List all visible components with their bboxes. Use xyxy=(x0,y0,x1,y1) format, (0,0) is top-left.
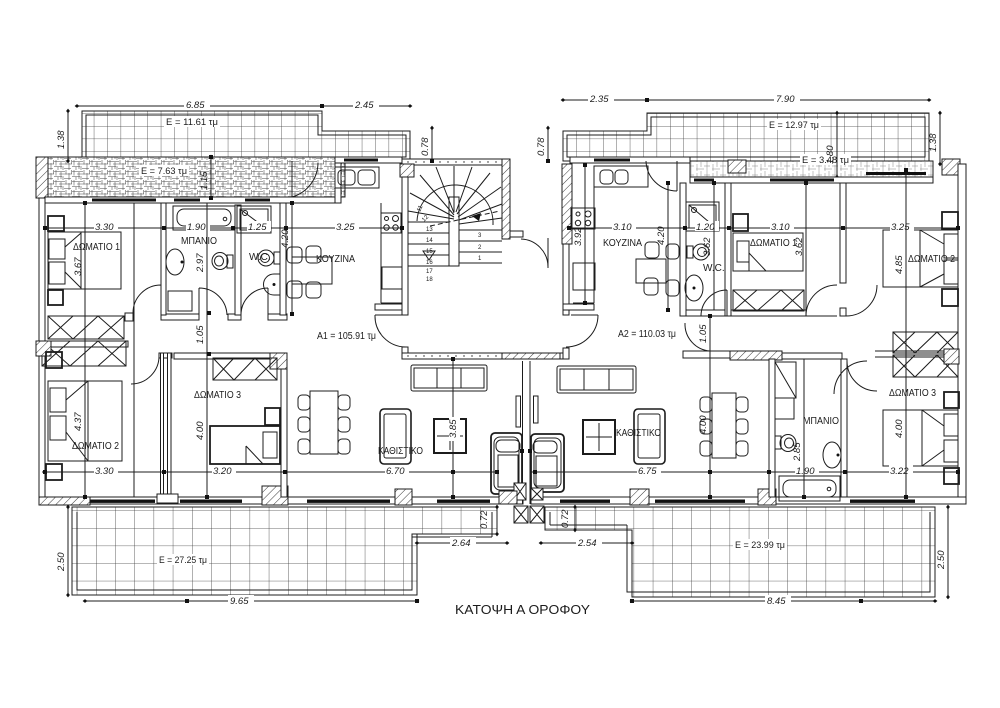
svg-text:1.20: 1.20 xyxy=(696,222,715,233)
svg-text:3.10: 3.10 xyxy=(771,222,790,233)
svg-text:1.05: 1.05 xyxy=(195,325,206,344)
svg-text:17: 17 xyxy=(426,269,433,275)
svg-text:1.38: 1.38 xyxy=(928,133,939,152)
svg-text:1.80: 1.80 xyxy=(825,145,836,164)
svg-text:1.25: 1.25 xyxy=(248,222,267,233)
svg-text:4.00: 4.00 xyxy=(195,421,206,440)
svg-text:1.90: 1.90 xyxy=(796,466,815,477)
svg-text:E = 11.61 τμ: E = 11.61 τμ xyxy=(166,117,218,128)
svg-text:4.20: 4.20 xyxy=(656,226,667,245)
svg-text:2.97: 2.97 xyxy=(195,253,206,273)
svg-text:W.C.: W.C. xyxy=(249,252,271,263)
svg-text:3.92: 3.92 xyxy=(573,227,584,246)
svg-text:2.54: 2.54 xyxy=(577,538,597,549)
svg-text:ΚΑΤΟΨΗ Α ΟΡΟΦΟΥ: ΚΑΤΟΨΗ Α ΟΡΟΦΟΥ xyxy=(455,603,591,617)
svg-text:E = 12.97 τμ: E = 12.97 τμ xyxy=(769,120,819,131)
svg-text:6.70: 6.70 xyxy=(386,466,405,477)
svg-text:7.90: 7.90 xyxy=(776,94,795,105)
svg-text:3.30: 3.30 xyxy=(95,222,114,233)
svg-text:2.85: 2.85 xyxy=(792,442,803,462)
svg-text:8.45: 8.45 xyxy=(767,596,786,607)
svg-text:E = 23.99 τμ: E = 23.99 τμ xyxy=(735,540,785,551)
svg-text:ΔΩΜΑΤΙΟ 2: ΔΩΜΑΤΙΟ 2 xyxy=(908,254,955,265)
svg-text:1.05: 1.05 xyxy=(698,324,709,343)
svg-text:A1 = 105.91 τμ: A1 = 105.91 τμ xyxy=(317,331,376,342)
svg-text:14: 14 xyxy=(426,238,433,244)
svg-text:ΔΩΜΑΤΙΟ 1: ΔΩΜΑΤΙΟ 1 xyxy=(750,238,797,249)
svg-text:W.C.: W.C. xyxy=(703,263,725,274)
svg-text:13: 13 xyxy=(426,227,433,233)
svg-text:2.45: 2.45 xyxy=(354,100,374,111)
svg-text:3.10: 3.10 xyxy=(613,222,632,233)
svg-text:0.72: 0.72 xyxy=(560,509,571,528)
svg-text:A2 = 110.03 τμ: A2 = 110.03 τμ xyxy=(618,329,676,340)
svg-text:2.50: 2.50 xyxy=(56,552,67,572)
svg-text:15: 15 xyxy=(426,249,433,255)
svg-text:1.90: 1.90 xyxy=(187,222,206,233)
svg-text:3.30: 3.30 xyxy=(95,466,114,477)
svg-text:3.62: 3.62 xyxy=(702,237,713,256)
svg-text:6.85: 6.85 xyxy=(186,100,205,111)
svg-text:E = 27.25 τμ: E = 27.25 τμ xyxy=(159,555,207,566)
svg-text:ΜΠΑΝΙΟ: ΜΠΑΝΙΟ xyxy=(803,416,839,427)
svg-text:0.78: 0.78 xyxy=(536,137,547,156)
svg-text:3.67: 3.67 xyxy=(73,257,84,276)
svg-text:1.15: 1.15 xyxy=(199,171,210,190)
svg-text:ΜΠΑΝΙΟ: ΜΠΑΝΙΟ xyxy=(181,236,217,247)
svg-text:0.78: 0.78 xyxy=(420,137,431,156)
svg-text:6.75: 6.75 xyxy=(638,466,657,477)
svg-text:9.65: 9.65 xyxy=(230,596,249,607)
svg-text:3.20: 3.20 xyxy=(213,466,232,477)
svg-text:4.00: 4.00 xyxy=(698,415,709,434)
svg-text:E = 7.63 τμ: E = 7.63 τμ xyxy=(141,166,187,177)
svg-text:3.25: 3.25 xyxy=(891,222,910,233)
svg-text:ΔΩΜΑΤΙΟ 3: ΔΩΜΑΤΙΟ 3 xyxy=(889,388,936,399)
svg-text:ΚΑΘΙΣΤΙΚΟ: ΚΑΘΙΣΤΙΚΟ xyxy=(378,446,423,457)
svg-text:4.00: 4.00 xyxy=(894,419,905,438)
svg-text:ΚΟΥΖΙΝΑ: ΚΟΥΖΙΝΑ xyxy=(316,254,355,265)
svg-text:ΔΩΜΑΤΙΟ 1: ΔΩΜΑΤΙΟ 1 xyxy=(73,242,120,253)
svg-text:2.50: 2.50 xyxy=(936,550,947,570)
svg-text:2.64: 2.64 xyxy=(451,538,471,549)
svg-text:ΚΑΘΙΣΤΙΚΟ: ΚΑΘΙΣΤΙΚΟ xyxy=(616,428,661,439)
svg-text:1.38: 1.38 xyxy=(56,130,67,149)
svg-text:ΔΩΜΑΤΙΟ 3: ΔΩΜΑΤΙΟ 3 xyxy=(194,390,241,401)
svg-text:3.25: 3.25 xyxy=(336,222,355,233)
svg-text:4.37: 4.37 xyxy=(73,412,84,431)
svg-text:18: 18 xyxy=(426,277,433,283)
svg-text:4.20: 4.20 xyxy=(280,229,291,248)
svg-text:0.72: 0.72 xyxy=(479,510,490,529)
svg-text:2.35: 2.35 xyxy=(589,94,609,105)
svg-text:16: 16 xyxy=(426,260,433,266)
svg-text:ΚΟΥΖΙΝΑ: ΚΟΥΖΙΝΑ xyxy=(603,238,642,249)
svg-text:ΔΩΜΑΤΙΟ 2: ΔΩΜΑΤΙΟ 2 xyxy=(72,441,119,452)
svg-text:3.85: 3.85 xyxy=(448,419,459,438)
svg-text:4.85: 4.85 xyxy=(894,255,905,274)
